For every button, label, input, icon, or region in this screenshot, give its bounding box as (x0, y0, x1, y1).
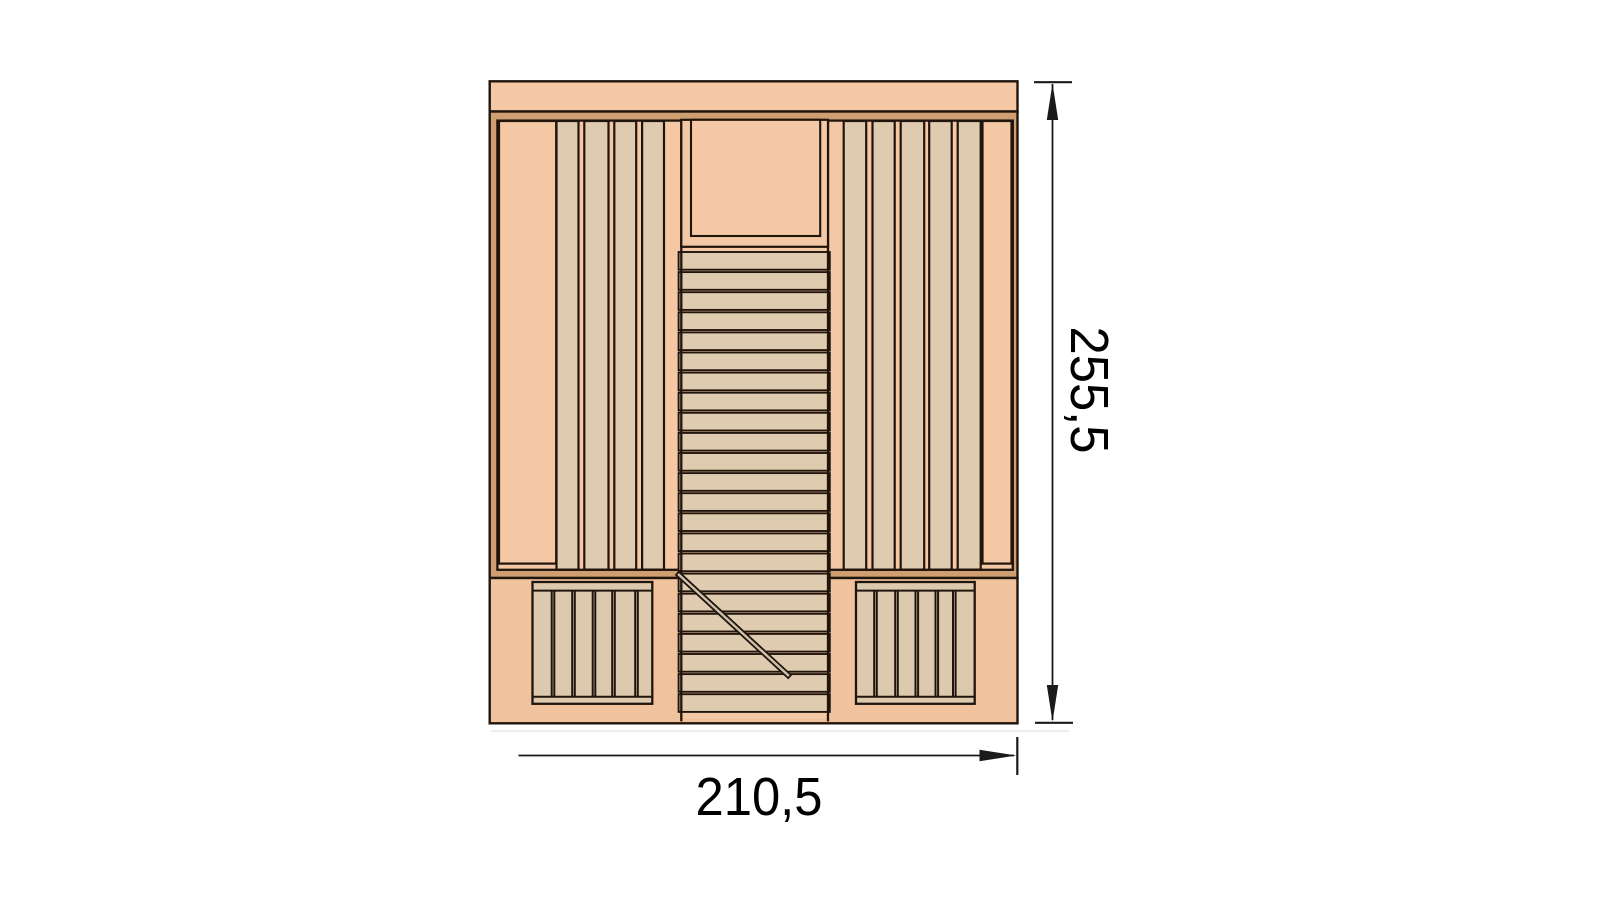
svg-text:210,5: 210,5 (696, 768, 823, 828)
svg-text:255,5: 255,5 (1058, 327, 1118, 454)
